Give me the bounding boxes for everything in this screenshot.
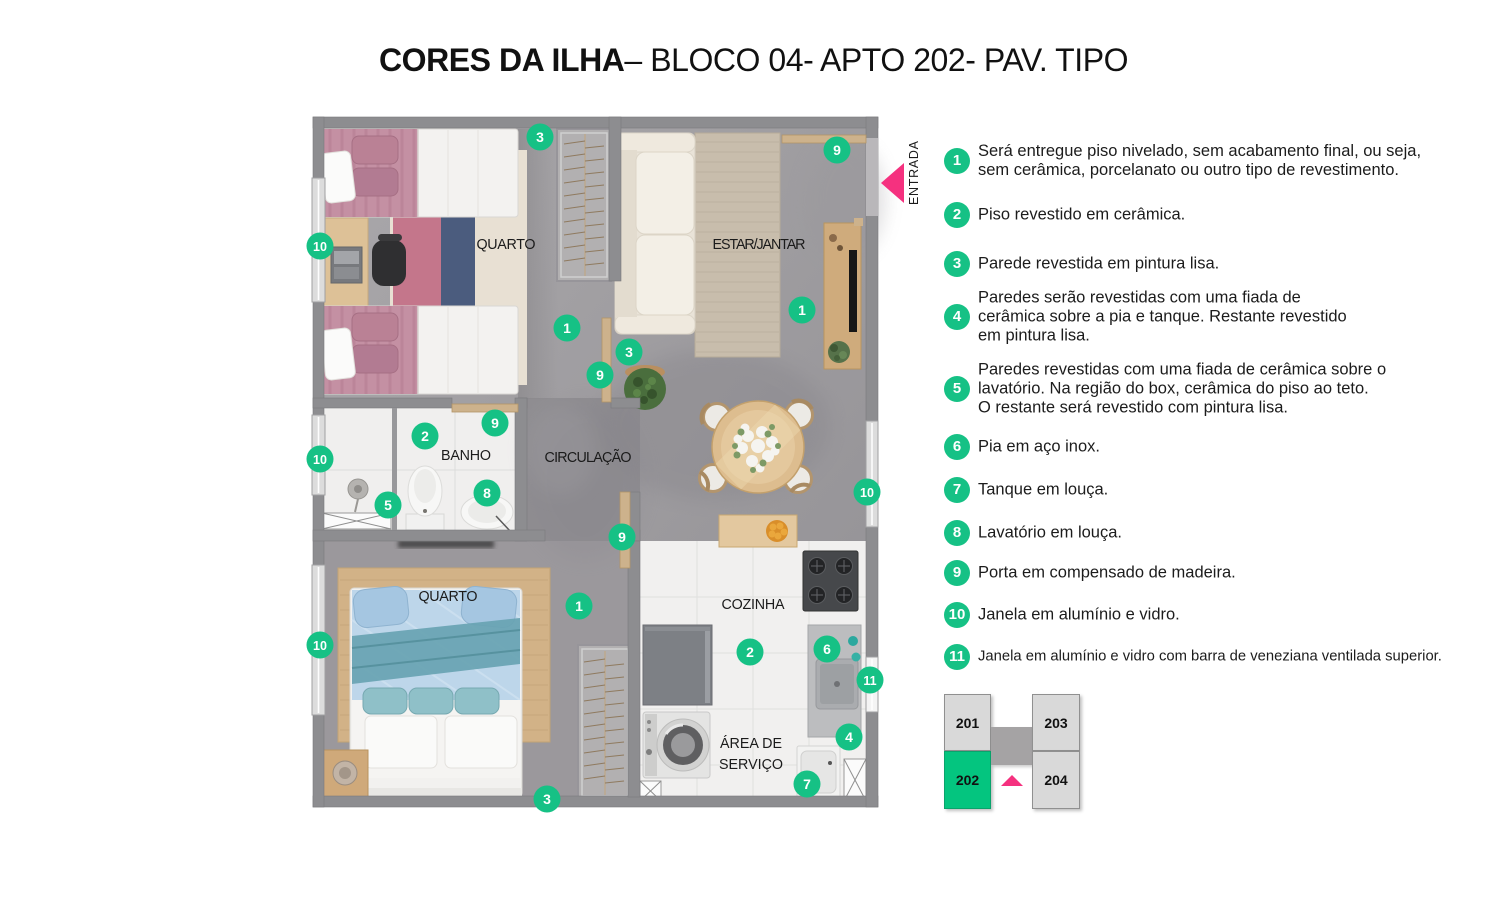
svg-text:3: 3 — [543, 791, 551, 807]
svg-text:CIRCULAÇÃO: CIRCULAÇÃO — [545, 449, 632, 466]
svg-text:10: 10 — [860, 486, 874, 500]
svg-text:7: 7 — [803, 776, 811, 792]
svg-text:BANHO: BANHO — [441, 448, 491, 464]
svg-text:ENTRADA: ENTRADA — [907, 140, 921, 205]
svg-text:11: 11 — [863, 674, 876, 688]
svg-text:SERVIÇO: SERVIÇO — [719, 757, 783, 773]
svg-text:10: 10 — [313, 453, 327, 467]
svg-text:4: 4 — [845, 729, 853, 745]
svg-text:QUARTO: QUARTO — [477, 237, 536, 253]
svg-text:3: 3 — [625, 344, 633, 360]
svg-text:5: 5 — [384, 497, 392, 513]
svg-text:10: 10 — [313, 240, 327, 254]
svg-text:9: 9 — [596, 367, 604, 383]
svg-text:1: 1 — [798, 302, 806, 318]
svg-text:ESTAR/JANTAR: ESTAR/JANTAR — [713, 237, 806, 253]
svg-text:10: 10 — [313, 639, 327, 653]
svg-text:6: 6 — [823, 641, 831, 657]
svg-text:2: 2 — [746, 644, 754, 660]
svg-text:1: 1 — [563, 320, 571, 336]
svg-text:2: 2 — [421, 428, 429, 444]
svg-text:QUARTO: QUARTO — [419, 589, 478, 605]
svg-text:9: 9 — [491, 415, 499, 431]
svg-text:9: 9 — [833, 142, 841, 158]
svg-text:9: 9 — [618, 529, 626, 545]
svg-text:ÁREA DE: ÁREA DE — [720, 735, 782, 752]
svg-text:8: 8 — [483, 485, 491, 501]
svg-text:COZINHA: COZINHA — [722, 597, 785, 613]
svg-text:3: 3 — [536, 129, 544, 145]
svg-text:1: 1 — [575, 598, 583, 614]
